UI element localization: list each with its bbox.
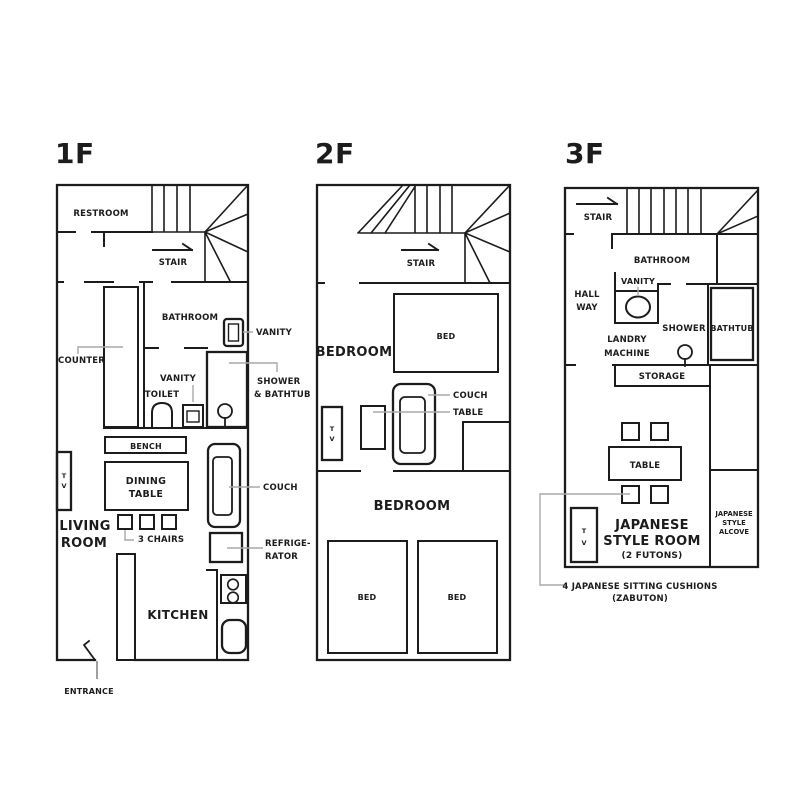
label-2f-tv-v: V xyxy=(329,435,334,443)
label-3f-room-1: JAPANESE xyxy=(614,518,689,533)
label-1f-living-2: ROOM xyxy=(61,536,107,551)
label-1f-entrance: ENTRANCE xyxy=(64,687,114,696)
3f-vanity-basin xyxy=(626,297,650,318)
label-3f-stair: STAIR xyxy=(584,213,613,223)
label-2f-bed-right: BED xyxy=(448,593,467,602)
label-1f-counter: COUNTER xyxy=(58,356,105,366)
label-1f-bench: BENCH xyxy=(130,442,162,451)
3f-stair-arrow-icon xyxy=(577,198,617,204)
label-3f-laundry-1: LANDRY xyxy=(607,335,647,345)
label-1f-restroom: RESTROOM xyxy=(73,209,128,219)
label-3f-laundry-2: MACHINE xyxy=(604,349,650,359)
3f-shower-head xyxy=(678,345,692,359)
floor-title-3f: 3F xyxy=(565,137,605,170)
2f-inner-walls xyxy=(317,283,510,471)
label-1f-fridge-1: REFRIGE- xyxy=(265,539,311,549)
1f-chair-1 xyxy=(118,515,132,529)
label-3f-bathroom: BATHROOM xyxy=(634,256,690,266)
2f-stair-arrow-icon xyxy=(402,244,438,250)
label-1f-shower-2: & BATHTUB xyxy=(254,390,311,400)
label-1f-dining-2: TABLE xyxy=(129,489,163,500)
label-2f-bedroom-bottom: BEDROOM xyxy=(374,499,451,514)
label-1f-living-1: LIVING xyxy=(59,519,110,534)
label-3f-table: TABLE xyxy=(630,461,660,471)
1f-counter xyxy=(104,287,138,427)
1f-wall-stub xyxy=(117,554,135,660)
3f-cushion-4 xyxy=(651,486,668,503)
1f-stair-arrow-icon xyxy=(153,244,192,250)
floor-3f: 3F STAIR BATHROOM VANITY HALL WAY LANDRY… xyxy=(540,137,758,604)
2f-couch-inner xyxy=(400,397,425,453)
label-3f-vanity: VANITY xyxy=(621,277,655,286)
label-1f-fridge-2: RATOR xyxy=(265,552,298,562)
1f-bathtub-drain xyxy=(218,404,232,418)
label-3f-bathtub: BATHTUB xyxy=(710,324,753,333)
label-1f-vanity-top: VANITY xyxy=(256,328,293,338)
floor-title-2f: 2F xyxy=(315,137,355,170)
label-3f-room-3: (2 FUTONS) xyxy=(622,551,683,561)
label-3f-callout-1: 4 JAPANESE SITTING CUSHIONS xyxy=(562,582,717,592)
label-3f-hall-1: HALL xyxy=(574,290,600,300)
label-2f-tv-t: T xyxy=(330,425,335,433)
floorplan-page: 1F RESTROOM STAIR BATHROOM VAN xyxy=(0,0,800,800)
1f-sink xyxy=(222,620,246,653)
label-2f-bed-top: BED xyxy=(437,332,456,341)
label-2f-bedroom-top: BEDROOM xyxy=(316,345,393,360)
2f-tv xyxy=(322,407,342,460)
3f-cushion-1 xyxy=(622,423,639,440)
3f-cushion-2 xyxy=(651,423,668,440)
label-3f-alcove-1: JAPANESE xyxy=(714,510,753,518)
1f-stove-burner-1 xyxy=(228,579,239,590)
label-1f-chairs: 3 CHAIRS xyxy=(138,535,184,545)
label-2f-bed-left: BED xyxy=(358,593,377,602)
label-1f-bathroom: BATHROOM xyxy=(162,313,218,323)
label-3f-room-2: STYLE ROOM xyxy=(603,534,700,549)
1f-chair-2 xyxy=(140,515,154,529)
floorplan-canvas: 1F RESTROOM STAIR BATHROOM VAN xyxy=(0,0,800,800)
label-3f-hall-2: WAY xyxy=(576,303,598,313)
label-3f-storage: STORAGE xyxy=(639,372,685,382)
label-3f-alcove-3: ALCOVE xyxy=(719,528,749,536)
1f-tv xyxy=(57,452,71,510)
3f-stairs xyxy=(627,188,758,234)
label-1f-vanity-mid: VANITY xyxy=(160,374,197,384)
label-1f-kitchen: KITCHEN xyxy=(147,608,208,622)
floor-title-1f: 1F xyxy=(55,137,95,170)
label-1f-couch: COUCH xyxy=(263,483,298,493)
label-2f-table: TABLE xyxy=(453,408,483,418)
floor-1f: 1F RESTROOM STAIR BATHROOM VAN xyxy=(55,137,311,696)
label-1f-shower-1: SHOWER xyxy=(257,377,301,387)
3f-tv xyxy=(571,508,597,562)
label-3f-shower: SHOWER xyxy=(662,324,706,334)
label-2f-couch: COUCH xyxy=(453,391,488,401)
label-3f-callout-2: (ZABUTON) xyxy=(612,594,668,604)
label-1f-stair: STAIR xyxy=(159,258,188,268)
label-3f-tv-t: T xyxy=(582,527,587,535)
label-2f-stair: STAIR xyxy=(407,259,436,269)
1f-toilet xyxy=(152,403,172,427)
1f-chair-3 xyxy=(162,515,176,529)
1f-entrance-door xyxy=(84,641,95,660)
label-1f-tv-t: T xyxy=(62,472,67,480)
label-3f-alcove-2: STYLE xyxy=(722,519,746,527)
1f-couch-inner xyxy=(213,457,232,515)
label-1f-tv-v: V xyxy=(61,482,66,490)
floor-2f: 2F STAIR BEDROOM BED T V COUCH TABLE BED… xyxy=(315,137,510,660)
label-3f-tv-v: V xyxy=(581,539,586,547)
label-1f-dining-1: DINING xyxy=(126,476,166,487)
label-1f-toilet: TOILET xyxy=(145,390,179,400)
1f-vanity-mid-basin xyxy=(187,411,199,422)
1f-vanity-top xyxy=(224,319,243,346)
1f-vanity-top-basin xyxy=(229,324,239,341)
1f-vanity-mid xyxy=(183,405,203,427)
1f-stove-burner-2 xyxy=(228,592,239,603)
